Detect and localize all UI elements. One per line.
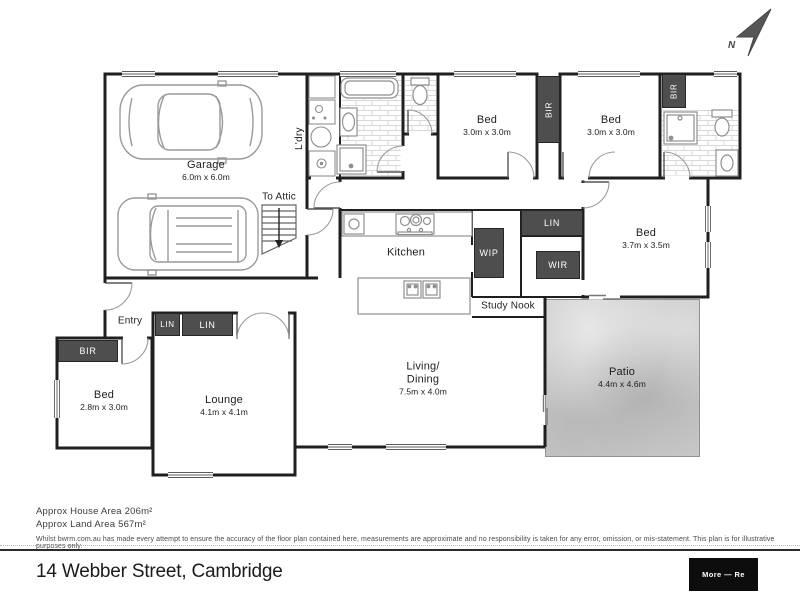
patio-label: Patio 4.4m x 4.6m [598,366,646,390]
floorplan-page: { "colors": {"wall": "#1f1f1f", "closet"… [0,0,800,600]
bir-closet-front-bed: BIR [58,340,118,362]
property-address: 14 Webber Street, Cambridge [36,561,283,583]
kitchen-label: Kitchen [387,247,425,260]
entry-label: Entry [118,315,142,328]
car-suv [118,194,258,275]
bir-closet-bed1: BIR [537,76,560,143]
laundry-label: L'dry [294,100,305,150]
disclaimer-text: Whilst bwrm.com.au has made every attemp… [36,536,776,550]
attic-stairs [262,205,296,254]
bir-closet-bed2: BIR [662,74,686,108]
garage-label: Garage 6.0m x 6.0m [182,159,230,183]
compass-north-label: N [728,40,735,51]
bed1-label: Bed 3.0m x 3.0m [463,114,511,138]
lounge-label: Lounge 4.1m x 4.1m [200,394,248,418]
lin-closet-kitchen: LIN [521,210,583,236]
house-area-text: Approx House Area 206m² [36,506,153,517]
dotted-rule [0,545,800,546]
to-attic-label: To Attic [262,191,296,204]
kitchen-fixtures [342,212,472,314]
laundry-fixtures [309,76,335,176]
walk-in-robe: WIR [536,251,580,279]
walk-in-pantry: WIP [474,228,504,278]
agency-logo: More — Re [689,558,758,591]
footer-divider [0,549,800,551]
car-sedan [120,81,262,163]
master-bed-label: Bed 3.7m x 3.5m [622,227,670,251]
front-bed-label: Bed 2.8m x 3.0m [80,389,128,413]
lin-closet-hall-2: LIN [182,313,233,336]
land-area-text: Approx Land Area 567m² [36,519,146,530]
lin-closet-hall-1: LIN [155,313,180,336]
bed2-label: Bed 3.0m x 3.0m [587,114,635,138]
living-dining-label: Living/ Dining 7.5m x 4.0m [399,361,447,398]
study-nook-label: Study Nook [481,300,535,313]
compass: N [720,2,795,64]
